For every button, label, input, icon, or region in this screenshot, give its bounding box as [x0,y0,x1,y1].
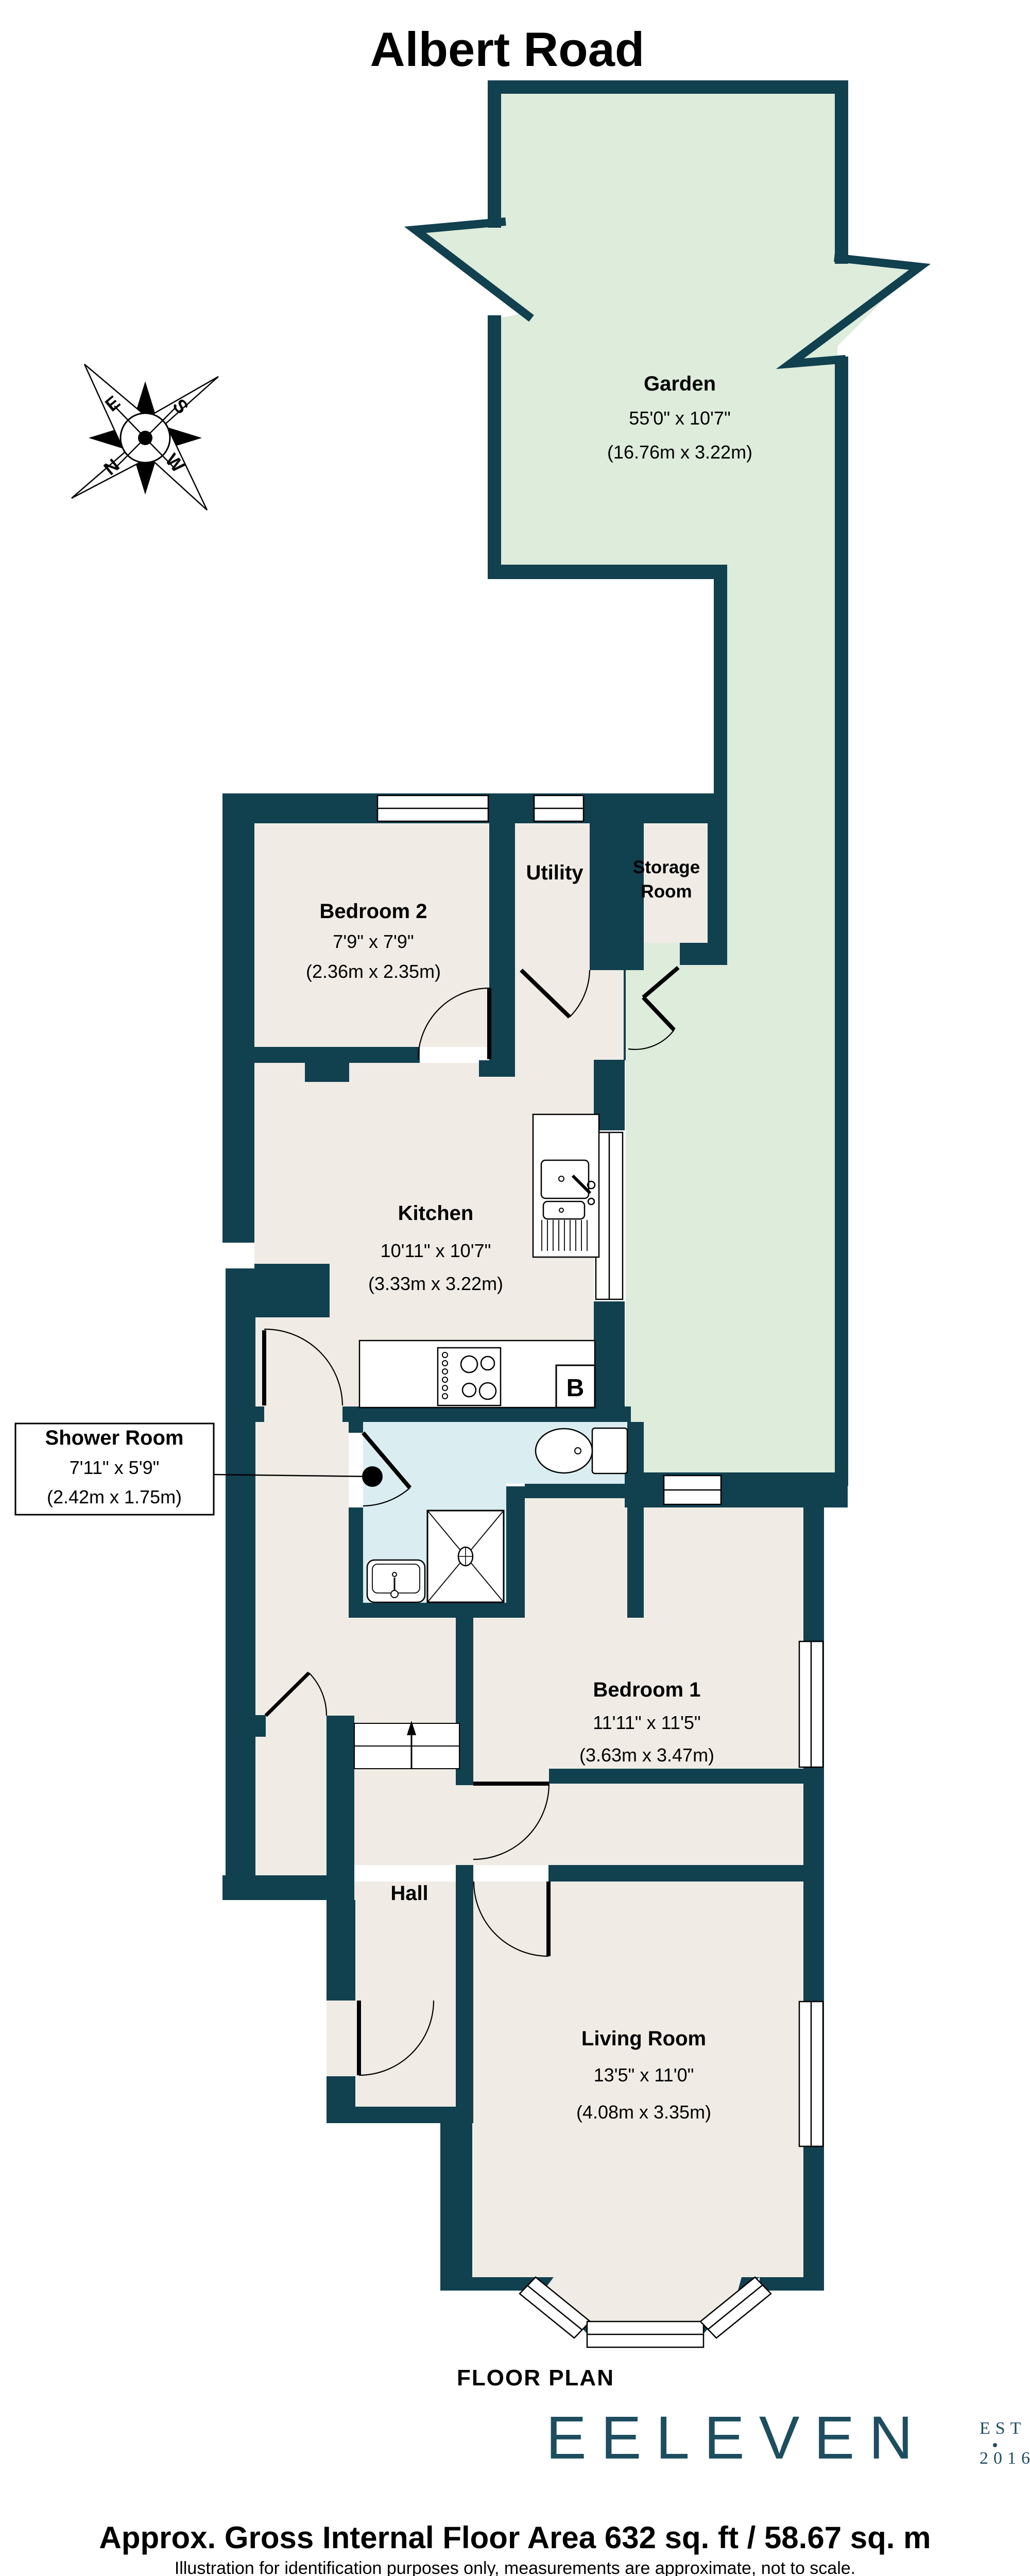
floor-plan-caption: FLOOR PLAN [457,2365,614,2391]
bedroom2-imperial: 7'9" x 7'9" [333,931,414,952]
living-imperial: 13'5" x 11'0" [594,2064,694,2086]
floorplan-canvas: Albert Road [0,0,1030,2576]
bedroom1-imperial: 11'11" x 11'5" [593,1712,700,1733]
storage-line2: Room [641,882,692,902]
leader-dot [362,1466,383,1487]
toilet-cistern [592,1428,627,1473]
compass-rose: E S N W [72,364,218,510]
bedroom1-upper-floor [644,1507,803,1618]
shower-name: Shower Room [45,1427,184,1449]
bedroom1-metric: (3.63m x 3.47m) [579,1744,714,1766]
living-metric: (4.08m x 3.35m) [576,2102,711,2123]
garden-name: Garden [644,372,716,395]
disclaimer-text: Illustration for identification purposes… [175,2558,855,2576]
garden-imperial: 55'0" x 10'7" [629,408,730,429]
kitchen-metric: (3.33m x 3.22m) [368,1273,503,1294]
living-name: Living Room [581,2027,706,2050]
basin-tap [391,1590,398,1598]
floorplan-page: Albert Road [0,0,1030,2576]
logo-year: 2016 [980,2449,1030,2468]
logo-est: EST [980,2419,1026,2438]
stairs [354,1721,459,1769]
shower-metric: (2.42m x 1.75m) [47,1486,182,1507]
garden-metric: (16.76m x 3.22m) [607,442,752,463]
logo-dot [993,2443,997,2447]
agency-logo: EELEVEN EST 2016 [546,2404,1030,2472]
logo-wordmark: EELEVEN [546,2404,927,2472]
page-title: Albert Road [370,22,645,76]
sink-basin-large [541,1160,589,1198]
floor-area-text: Approx. Gross Internal Floor Area 632 sq… [99,2520,931,2555]
landing-floor [327,1784,803,1865]
boiler-label: B [566,1375,585,1402]
bedroom1-notch-floor [525,1498,627,1618]
storage-line1: Storage [633,857,700,877]
bedroom2-metric: (2.36m x 2.35m) [306,961,441,982]
compass-center-dot [138,431,152,445]
bedroom2-name: Bedroom 2 [320,900,427,923]
utility-floor [515,823,590,970]
toilet-bowl [536,1429,592,1473]
kitchen-imperial: 10'11" x 10'7" [381,1240,491,1261]
shower-imperial: 7'11" x 5'9" [70,1457,160,1478]
utility-name: Utility [526,861,583,884]
bedroom1-name: Bedroom 1 [593,1679,701,1701]
hall-name: Hall [390,1882,428,1905]
kitchen-name: Kitchen [398,1202,474,1225]
